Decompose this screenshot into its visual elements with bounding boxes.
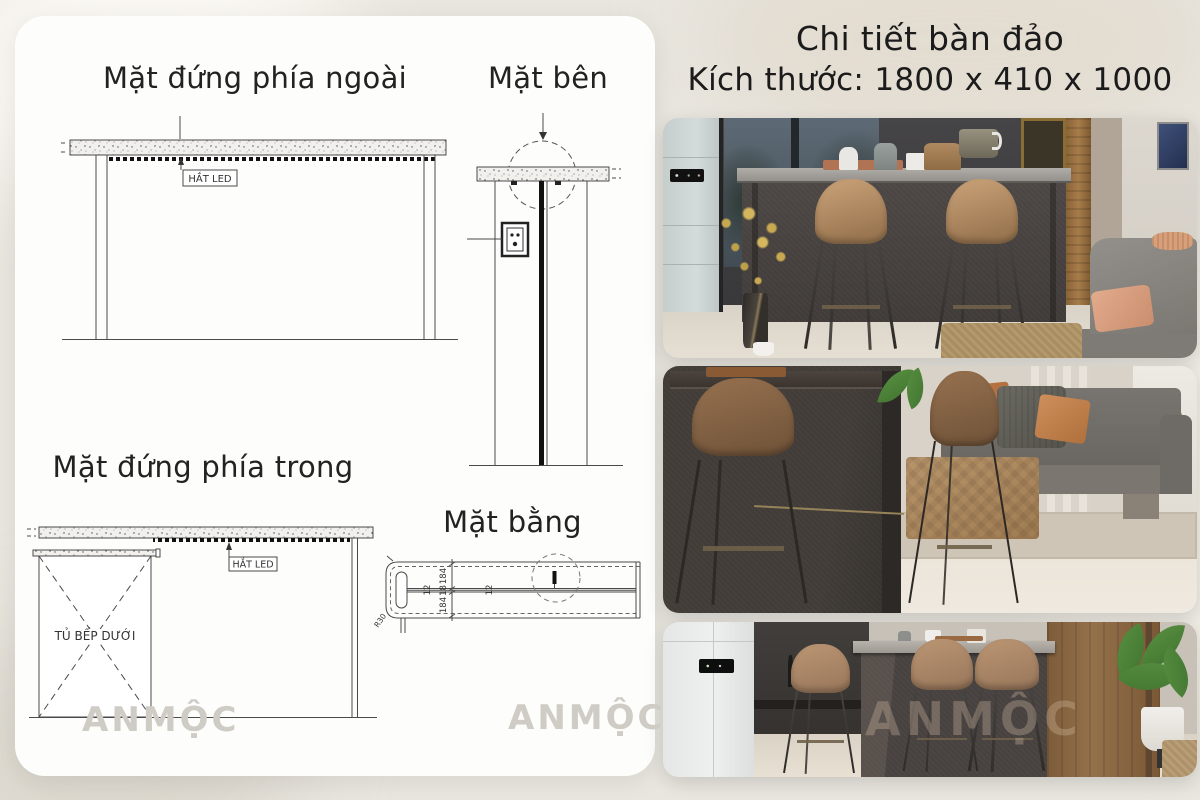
throw-pillow xyxy=(1034,394,1090,445)
dim-gap: 18 xyxy=(439,585,449,596)
stool-seat xyxy=(692,378,793,455)
throw-pillow xyxy=(1090,285,1154,334)
fridge-seam xyxy=(663,641,754,642)
flower-vase xyxy=(743,293,768,348)
side-view-lines xyxy=(467,113,623,466)
island-countertop xyxy=(737,168,1071,183)
drawing-side-view xyxy=(455,105,630,475)
stool-seat xyxy=(975,639,1039,690)
page-subtitle: Kích thước: 1800 x 410 x 1000 xyxy=(645,63,1200,99)
kettle-handle xyxy=(992,132,1002,150)
refrigerator xyxy=(663,622,754,777)
stool-seat xyxy=(946,179,1018,244)
dim-panel-left: 12 xyxy=(423,585,433,596)
bar-stool xyxy=(815,179,887,349)
stool-leg xyxy=(804,690,811,773)
page: Mặt đứng phía ngoài Mặt bên Mặt đứng phí… xyxy=(0,0,1200,800)
corner-radius-label: R30 xyxy=(372,612,388,629)
bar-stool xyxy=(791,644,850,774)
picture-frame xyxy=(1157,122,1189,170)
photo-kitchen-island-closeup xyxy=(663,366,1197,613)
stool-leg xyxy=(828,240,837,349)
base-cabinet-label: TỦ BẾP DƯỚI xyxy=(54,627,136,643)
stool-leg xyxy=(942,441,953,605)
dim-depth-top: 184 xyxy=(439,568,449,584)
bread-box xyxy=(924,143,961,169)
bench xyxy=(1162,740,1197,777)
stool-seat xyxy=(911,639,972,690)
dim-panel-right: 12 xyxy=(485,585,495,596)
fridge-seam xyxy=(713,622,714,777)
led-label: HẮT LED xyxy=(232,558,273,571)
led-label: HẮT LED xyxy=(188,171,232,185)
stool-footrest xyxy=(937,545,993,550)
fridge-display xyxy=(699,659,733,673)
inside-elevation-title: Mặt đứng phía trong xyxy=(40,451,366,484)
fridge-control-panel xyxy=(670,169,705,183)
stool-leg xyxy=(711,460,722,605)
led-strip xyxy=(153,538,350,543)
coffee-kettle xyxy=(959,129,997,158)
ottoman xyxy=(941,323,1083,358)
stool-seat xyxy=(930,371,999,446)
bar-stool xyxy=(930,371,999,606)
stool-leg xyxy=(863,240,872,349)
outside-elevation-lines xyxy=(61,116,458,340)
photo-kitchen-island-front xyxy=(663,118,1197,358)
inside-elevation-lines xyxy=(27,527,377,718)
drawing-outside-elevation: HẮT LED xyxy=(60,108,460,348)
canister xyxy=(874,143,897,169)
stool-seat xyxy=(791,644,850,693)
stool-footrest xyxy=(703,546,784,551)
stool-seat xyxy=(815,179,887,244)
stool-footrest xyxy=(822,305,880,308)
wood-door-frame xyxy=(1066,118,1091,305)
plan-view-title: Mặt bằng xyxy=(430,506,595,539)
dim-depth-bottom: 184 xyxy=(439,597,449,613)
fridge-seam xyxy=(663,157,719,158)
drawing-inside-elevation: HẮT LED TỦ BẾP DƯỚI xyxy=(25,513,385,728)
sofa-arm xyxy=(1160,415,1192,494)
coffee-cup xyxy=(753,342,774,355)
bottles xyxy=(898,631,911,642)
page-title: Chi tiết bàn đảo xyxy=(663,20,1197,58)
watermark: ANMỘC xyxy=(508,698,665,738)
serving-board xyxy=(706,367,786,377)
island-post xyxy=(1050,183,1056,322)
island-side-shadow xyxy=(882,371,901,613)
stool-footrest xyxy=(797,740,844,743)
side-view-title: Mặt bên xyxy=(463,62,633,95)
power-outlet-icon xyxy=(502,223,528,256)
dried-flowers xyxy=(708,204,799,300)
drawing-plan-view: 184 18 184 12 12 R30 xyxy=(368,548,650,643)
watermark: ANMỘC xyxy=(82,700,239,740)
white-jug xyxy=(839,147,858,170)
bar-stool xyxy=(692,378,793,605)
stool-footrest xyxy=(953,305,1011,308)
bolster-cushion xyxy=(1152,232,1193,249)
led-strip xyxy=(106,156,437,161)
watermark: ANMỘC xyxy=(865,692,1083,746)
outside-elevation-title: Mặt đứng phía ngoài xyxy=(80,62,430,95)
leg-section xyxy=(396,572,407,608)
